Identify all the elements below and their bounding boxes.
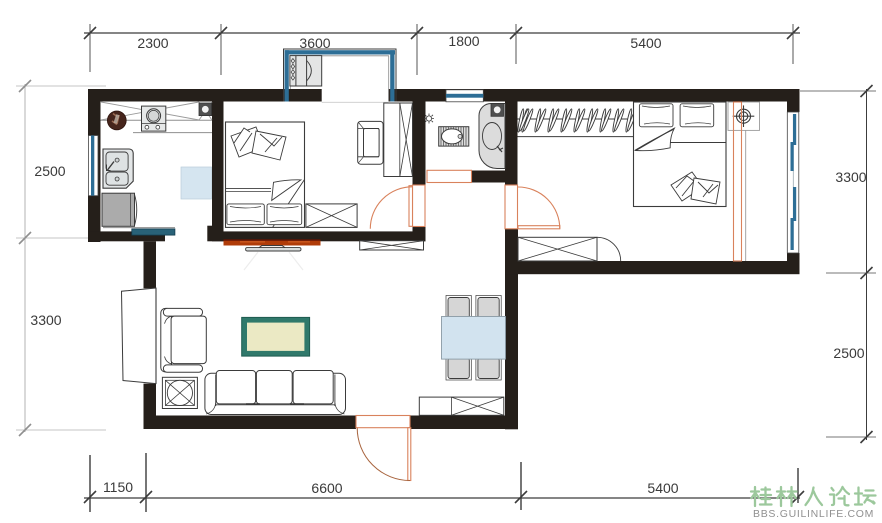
svg-text:3300: 3300 — [30, 312, 61, 328]
svg-text:BBS.GUILINLIFE.COM: BBS.GUILINLIFE.COM — [753, 508, 874, 520]
svg-text:6600: 6600 — [311, 480, 342, 496]
svg-text:5400: 5400 — [630, 35, 661, 51]
svg-text:2500: 2500 — [34, 163, 65, 179]
svg-text:3300: 3300 — [835, 169, 866, 185]
svg-text:5400: 5400 — [647, 480, 678, 496]
svg-text:1150: 1150 — [103, 479, 133, 495]
svg-text:1800: 1800 — [448, 33, 479, 49]
svg-text:2500: 2500 — [833, 345, 864, 361]
svg-text:2300: 2300 — [137, 35, 168, 51]
